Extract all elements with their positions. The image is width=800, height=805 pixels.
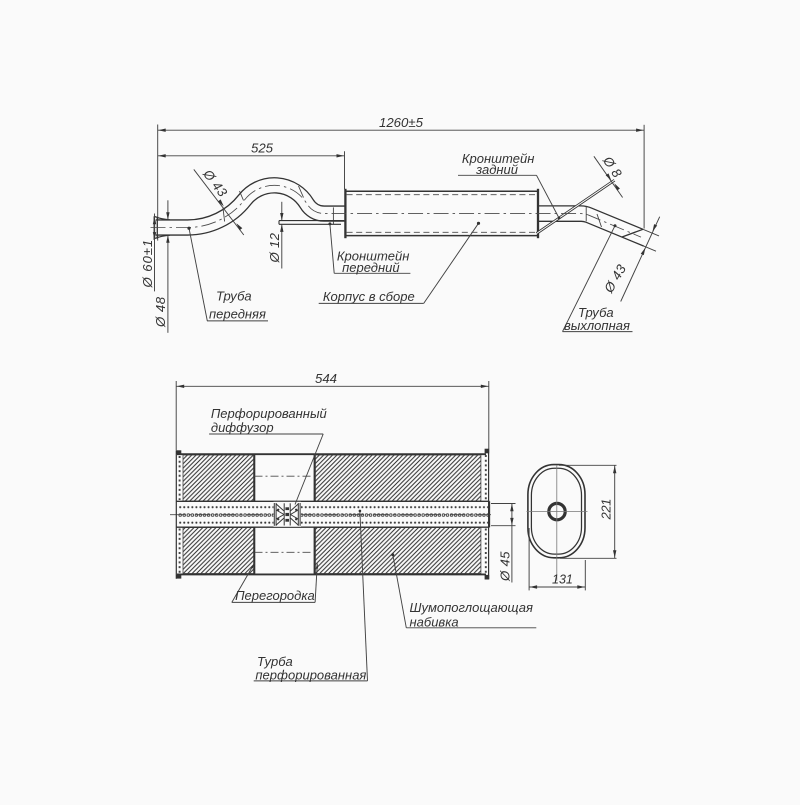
svg-text:544: 544	[315, 371, 337, 386]
svg-text:Ø 8: Ø 8	[599, 153, 625, 181]
svg-text:Перфорированный: Перфорированный	[211, 406, 327, 421]
svg-text:выхлопная: выхлопная	[564, 318, 630, 333]
svg-text:набивка: набивка	[410, 614, 459, 629]
svg-text:Ø 43: Ø 43	[601, 261, 630, 296]
svg-text:передний: передний	[342, 260, 400, 275]
svg-text:Ø 45: Ø 45	[497, 551, 512, 582]
svg-text:Труба: Труба	[216, 289, 252, 304]
svg-text:525: 525	[251, 141, 274, 156]
svg-text:перфорированная: перфорированная	[255, 667, 366, 682]
svg-text:Корпус в сборе: Корпус в сборе	[323, 289, 415, 304]
svg-text:Ø 48: Ø 48	[153, 296, 168, 328]
svg-text:221: 221	[598, 499, 613, 521]
svg-text:передняя: передняя	[209, 307, 266, 322]
svg-text:Ø 12: Ø 12	[267, 232, 282, 263]
svg-text:диффузор: диффузор	[211, 420, 274, 435]
svg-text:Шумопоглощающая: Шумопоглощающая	[410, 600, 533, 615]
svg-text:Ø 60±1: Ø 60±1	[140, 239, 155, 289]
svg-text:1260±5: 1260±5	[379, 115, 424, 130]
svg-text:131: 131	[552, 573, 573, 587]
svg-text:задний: задний	[475, 162, 518, 177]
svg-text:Перегородка: Перегородка	[235, 588, 315, 603]
